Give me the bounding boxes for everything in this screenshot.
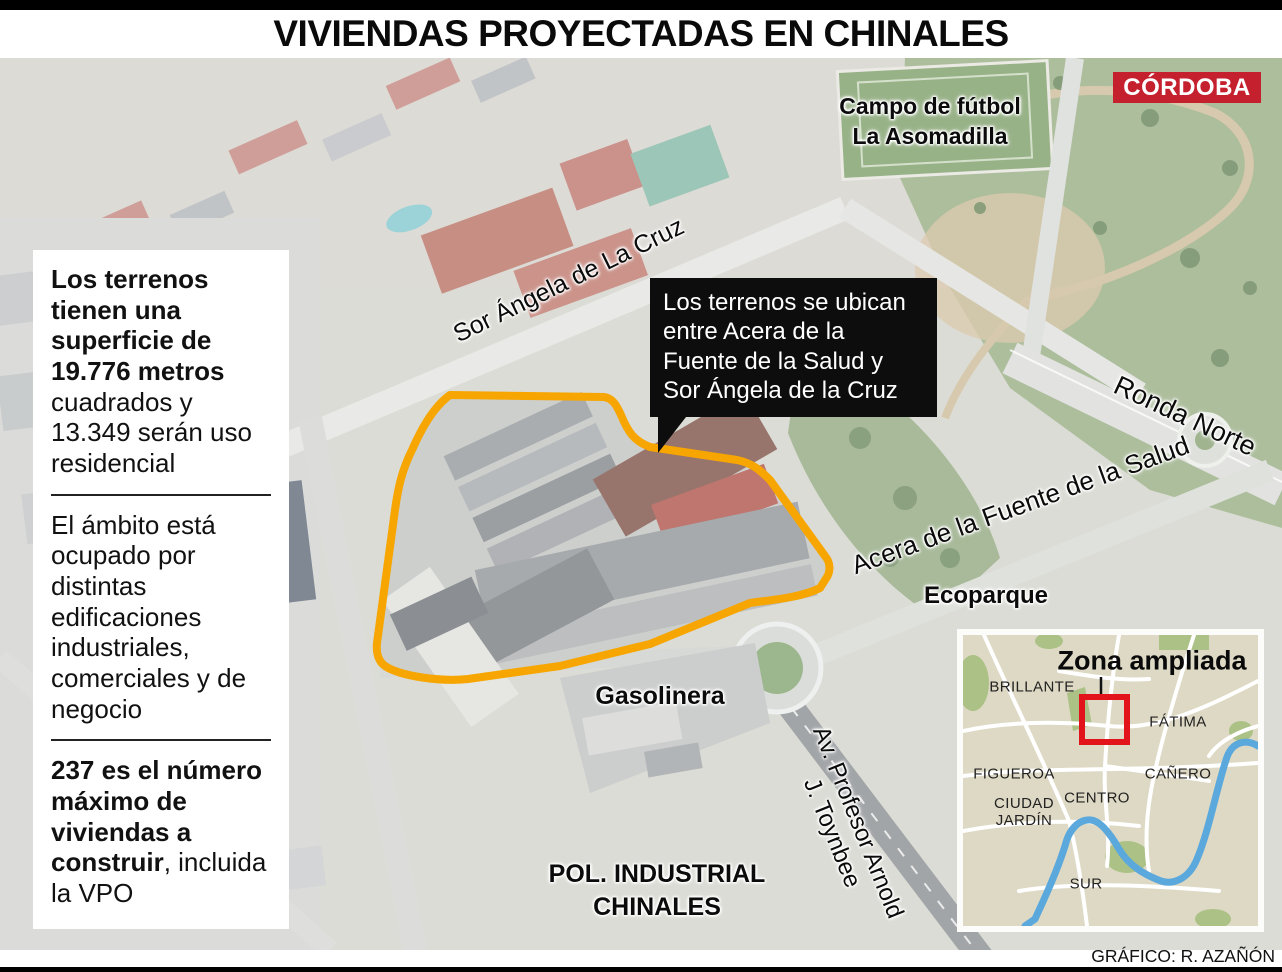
credit: GRÁFICO: R. AZAÑÓN [1091, 946, 1275, 967]
info-surface-regular: cuadrados y 13.349 serán uso residencial [51, 387, 252, 478]
district-fatima: FÁTIMA [1149, 713, 1206, 730]
info-surface: Los terrenos tienen una superficie de 19… [51, 264, 271, 479]
district-ciudad-jardin: CIUDAD JARDÍN [994, 795, 1054, 830]
label-gasolinera: Gasolinera [560, 682, 760, 711]
label-campo-futbol: Campo de fútbol La Asomadilla [820, 92, 1040, 152]
label-pol-industrial: POL. INDUSTRIAL CHINALES [507, 858, 807, 923]
district-canero: CAÑERO [1145, 765, 1212, 782]
title-band: VIVIENDAS PROYECTADAS EN CHINALES [0, 10, 1282, 58]
location-callout: Los terrenos se ubican entre Acera de la… [650, 278, 937, 417]
info-surface-bold: Los terrenos tienen una superficie de 19… [51, 264, 224, 386]
page-title: VIVIENDAS PROYECTADAS EN CHINALES [273, 13, 1008, 55]
district-centro: CENTRO [1064, 789, 1130, 806]
info-panel: Los terrenos tienen una superficie de 19… [33, 250, 289, 929]
infographic: VIVIENDAS PROYECTADAS EN CHINALES [0, 0, 1282, 972]
district-figueroa: FIGUEROA [973, 765, 1055, 782]
label-ecoparque: Ecoparque [886, 582, 1086, 610]
top-rule [0, 0, 1282, 10]
info-usage: El ámbito está ocupado por distintas edi… [51, 510, 271, 725]
panel-divider [51, 739, 271, 741]
bottom-rule [0, 967, 1282, 972]
district-brillante: BRILLANTE [989, 678, 1074, 695]
inset-locator-map: Zona ampliada BRILLANTE FÁTIMA FIGUEROA … [957, 629, 1264, 932]
panel-divider [51, 494, 271, 496]
district-sur: SUR [1070, 875, 1103, 892]
inset-title: Zona ampliada [1057, 646, 1246, 677]
cordoba-logo: CÓRDOBA [1113, 72, 1261, 103]
info-homes: 237 es el número máximo de viviendas a c… [51, 755, 271, 908]
